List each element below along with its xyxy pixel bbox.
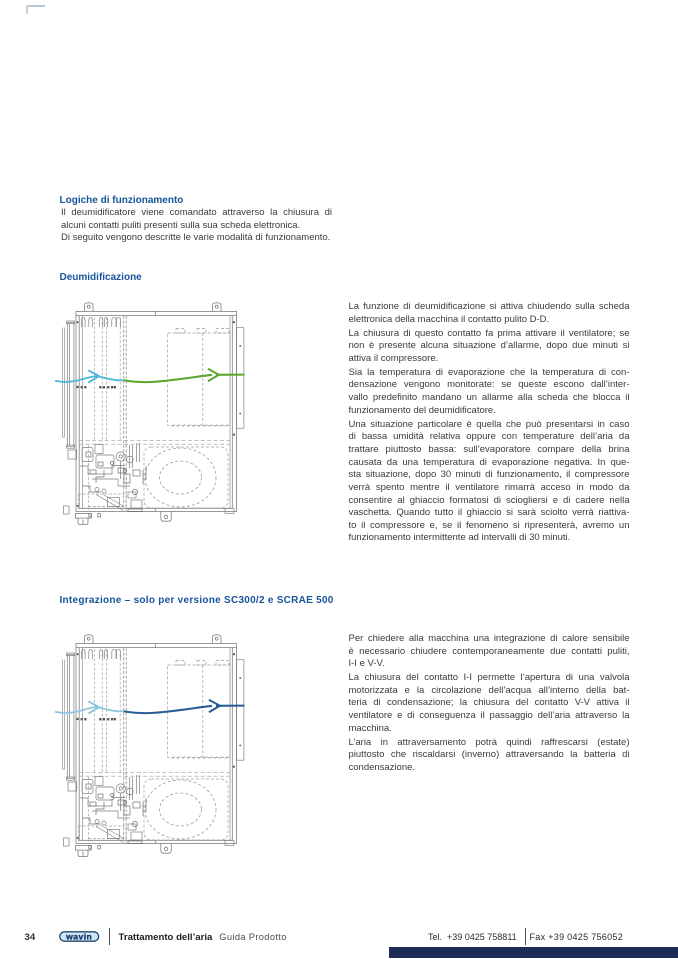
svg-text:wavin: wavin (65, 932, 92, 942)
